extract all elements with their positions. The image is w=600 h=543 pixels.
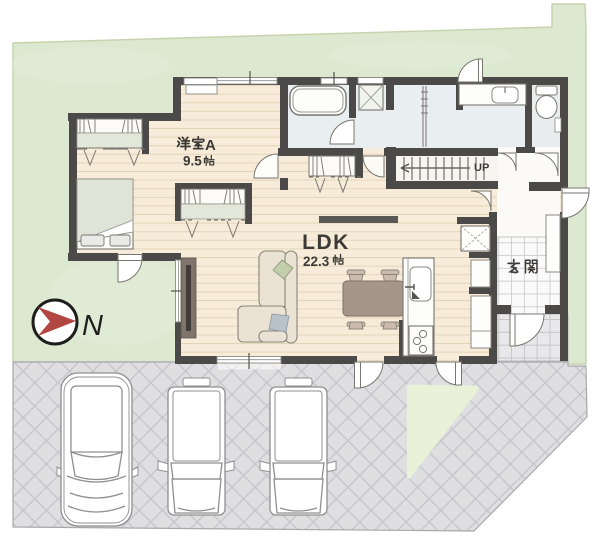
svg-text:LDK: LDK xyxy=(302,231,350,254)
svg-text:A: A xyxy=(205,137,216,154)
svg-text:9.5: 9.5 xyxy=(183,154,202,169)
svg-text:22.3: 22.3 xyxy=(303,254,330,269)
svg-text:UP: UP xyxy=(474,162,489,174)
svg-text:N: N xyxy=(82,310,103,342)
